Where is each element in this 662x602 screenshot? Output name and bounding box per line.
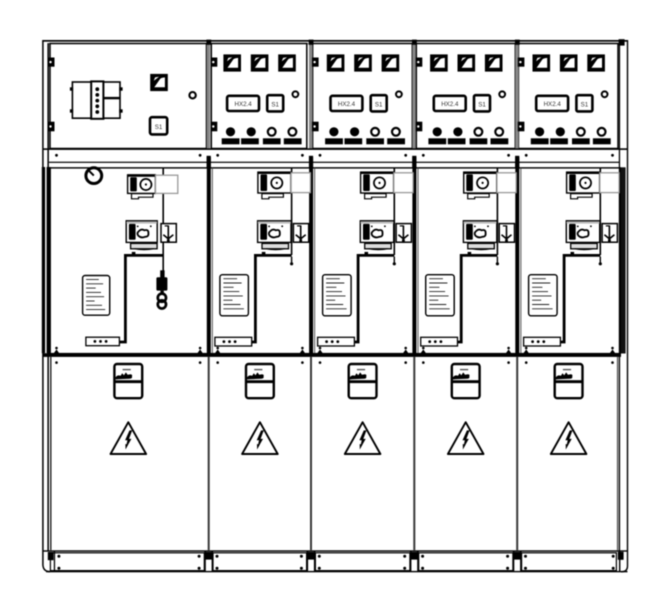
svg-text:S1: S1 bbox=[581, 101, 589, 108]
svg-text:HX2.4: HX2.4 bbox=[338, 101, 356, 108]
svg-text:S1: S1 bbox=[155, 124, 163, 131]
svg-text:S1: S1 bbox=[375, 101, 383, 108]
svg-text:S1: S1 bbox=[478, 101, 486, 108]
svg-text:HX2.4: HX2.4 bbox=[441, 101, 459, 108]
svg-text:S1: S1 bbox=[271, 101, 279, 108]
svg-text:HX2.4: HX2.4 bbox=[544, 101, 562, 108]
svg-text:HX2.4: HX2.4 bbox=[234, 101, 252, 108]
